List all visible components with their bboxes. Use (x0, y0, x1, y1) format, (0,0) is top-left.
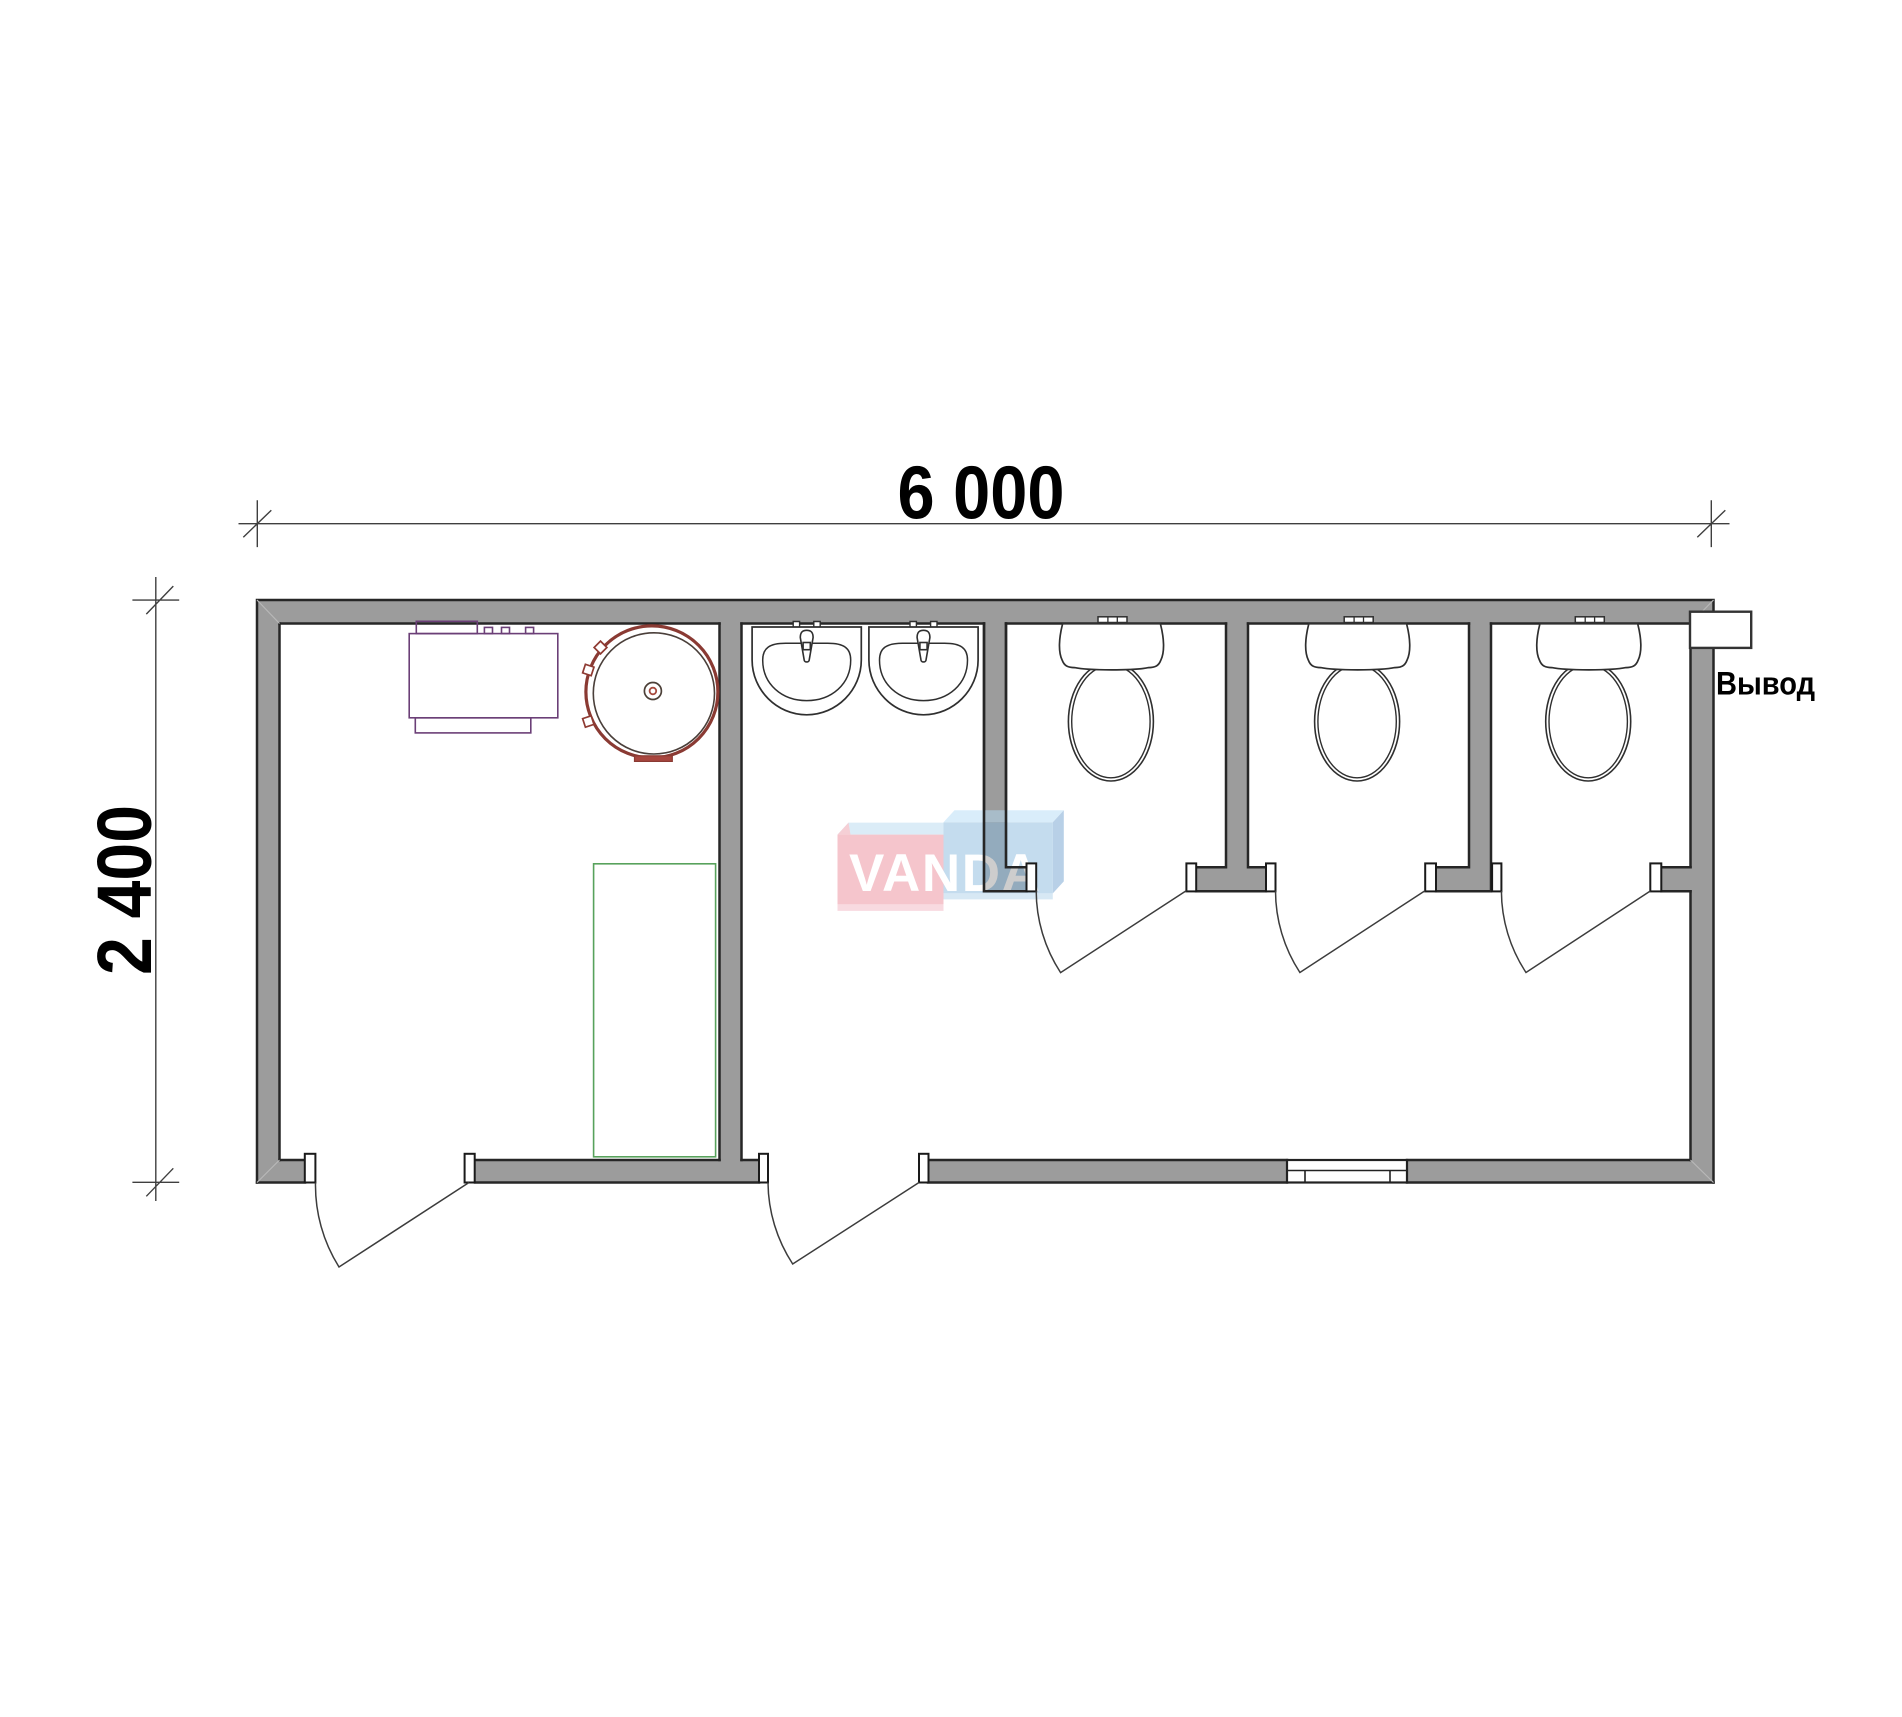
svg-text:Вывод: Вывод (1716, 666, 1815, 702)
svg-text:2 400: 2 400 (82, 805, 168, 975)
svg-text:VANDA: VANDA (849, 844, 1042, 903)
svg-text:6 000: 6 000 (898, 451, 1065, 535)
